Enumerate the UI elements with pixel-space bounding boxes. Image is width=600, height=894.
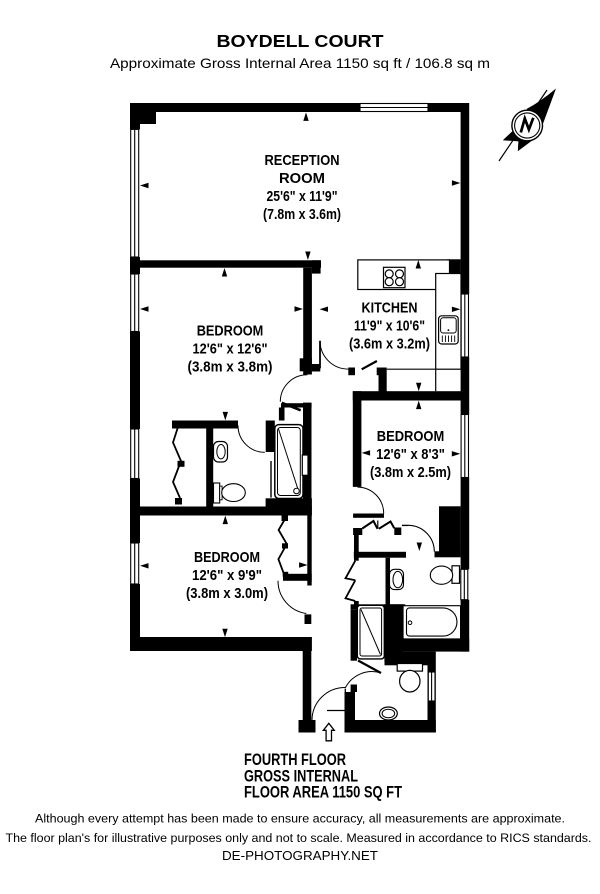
svg-text:(3.8m x 3.0m): (3.8m x 3.0m): [186, 585, 268, 602]
svg-text:RECEPTION: RECEPTION: [265, 152, 340, 169]
svg-text:(3.8m x 2.5m): (3.8m x 2.5m): [370, 464, 451, 481]
svg-text:The floor plan's for illustrat: The floor plan's for illustrative purpos…: [6, 831, 592, 845]
svg-text:BOYDELL COURT: BOYDELL COURT: [217, 31, 384, 51]
svg-text:BEDROOM: BEDROOM: [377, 428, 445, 445]
svg-text:(7.8m x 3.6m): (7.8m x 3.6m): [263, 206, 341, 223]
svg-text:12'6" x 8'3": 12'6" x 8'3": [376, 446, 445, 463]
svg-text:KITCHEN: KITCHEN: [362, 300, 418, 317]
svg-text:(3.6m x 3.2m): (3.6m x 3.2m): [349, 336, 430, 353]
svg-text:Although every attempt has bee: Although every attempt has been made to …: [35, 812, 565, 826]
svg-text:25'6" x 11'9": 25'6" x 11'9": [267, 188, 338, 205]
svg-text:BEDROOM: BEDROOM: [194, 549, 260, 566]
svg-text:BEDROOM: BEDROOM: [197, 323, 264, 340]
svg-text:ROOM: ROOM: [279, 170, 325, 187]
svg-text:12'6" x 12'6": 12'6" x 12'6": [193, 341, 268, 358]
svg-text:DE-PHOTOGRAPHY.NET: DE-PHOTOGRAPHY.NET: [222, 848, 378, 863]
svg-text:11'9" x 10'6": 11'9" x 10'6": [354, 318, 425, 335]
svg-text:12'6" x 9'9": 12'6" x 9'9": [192, 567, 262, 584]
svg-text:(3.8m x 3.8m): (3.8m x 3.8m): [188, 359, 273, 376]
svg-text:FOURTH FLOOR: FOURTH FLOOR: [244, 751, 346, 769]
svg-text:Approximate Gross Internal Are: Approximate Gross Internal Area 1150 sq …: [110, 55, 490, 71]
svg-text:FLOOR AREA 1150 SQ FT: FLOOR AREA 1150 SQ FT: [244, 784, 402, 802]
